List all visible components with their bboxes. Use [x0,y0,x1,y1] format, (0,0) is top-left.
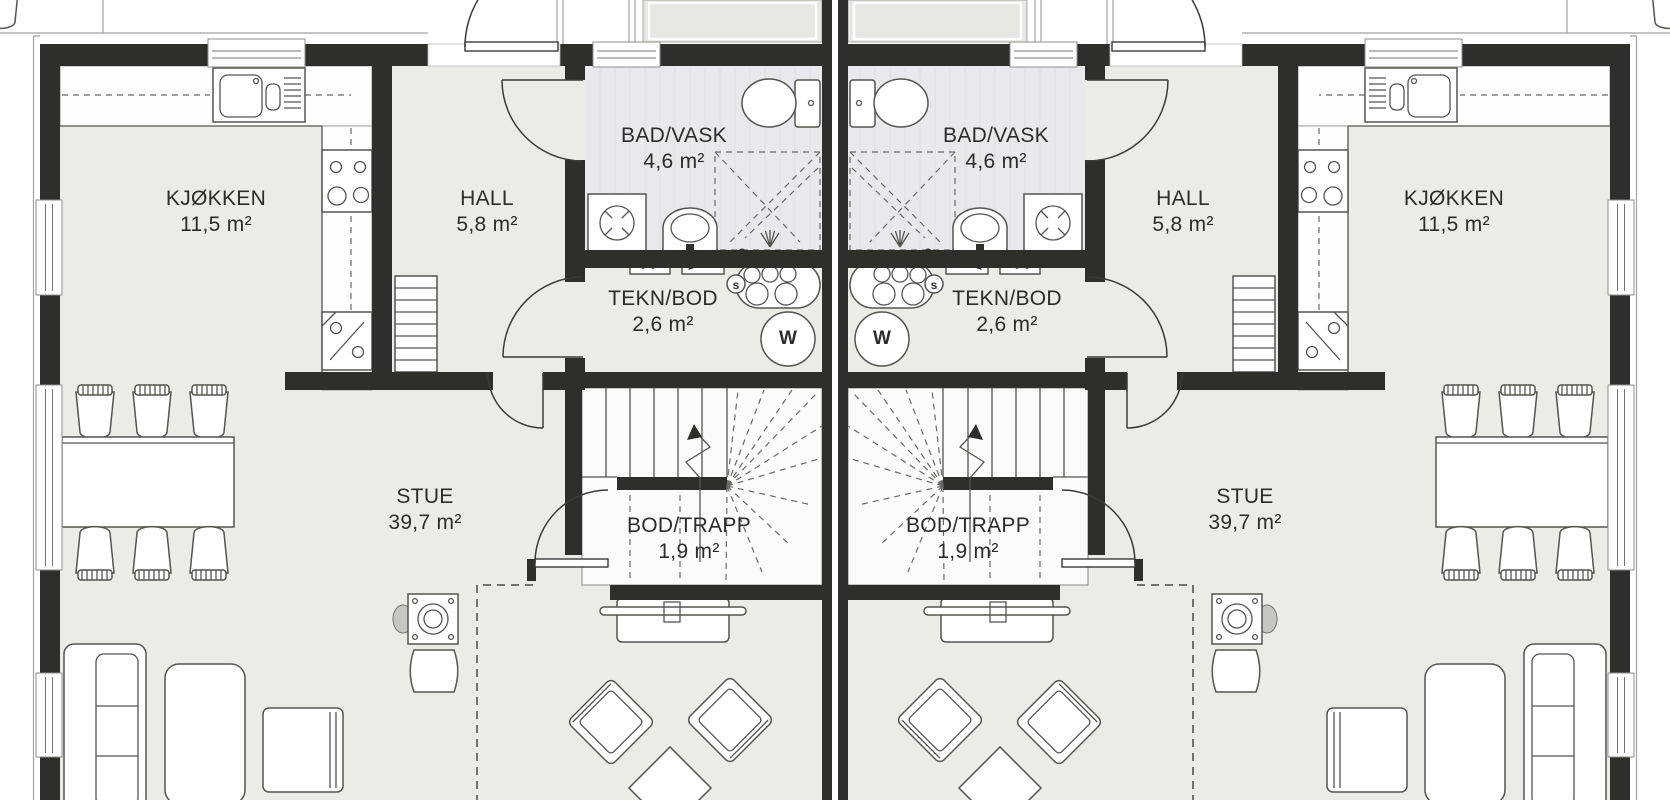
water-heater-label-right: W [873,328,891,350]
room-area: 11,5 m² [166,212,266,238]
window [208,39,305,67]
room-area: 5,8 m² [456,212,517,238]
window [593,42,660,67]
room-name: KJØKKEN [166,186,266,212]
room-area: 2,6 m² [608,312,718,338]
room-name: TEKN/BOD [608,286,718,312]
room-name: BAD/VASK [621,123,727,149]
sofa [64,644,146,800]
room-area: 39,7 m² [1208,510,1281,536]
toilet-icon [742,79,820,127]
entrance-door [465,0,558,51]
unit-right-mirrored [835,0,1670,800]
armchair [263,708,343,792]
room-label-kjokken-right: KJØKKEN 11,5 m² [1404,186,1504,238]
window [36,200,62,295]
cooktop-icon [322,150,372,212]
room-area: 5,8 m² [1152,212,1213,238]
dining-chair [76,385,114,438]
room-label-tekn-left: TEKN/BOD 2,6 m² [608,286,718,338]
room-area: 39,7 m² [388,510,461,536]
room-area: 1,9 m² [906,539,1030,565]
window [36,385,62,570]
dining-chair [133,527,171,580]
tv-bench [600,598,746,642]
room-label-bad-left: BAD/VASK 4,6 m² [621,123,727,175]
room-label-stue-right: STUE 39,7 m² [1208,484,1281,536]
room-area: 4,6 m² [621,149,727,175]
washbasin-icon [663,208,717,252]
room-name: HALL [1152,186,1213,212]
kitchen-sink-icon [213,68,305,122]
party-wall [822,0,832,800]
room-label-hall-right: HALL 5,8 m² [1152,186,1213,238]
room-name: KJØKKEN [1404,186,1504,212]
dining-table [62,437,234,527]
dishwasher-icon [322,312,372,370]
floor-plan-drawing [0,0,1670,800]
shunt-label-left: s [733,278,740,292]
wardrobe-icon [395,276,437,372]
unit-left [0,0,835,800]
room-label-stue-left: STUE 39,7 m² [388,484,461,536]
room-name: HALL [456,186,517,212]
room-area: 2,6 m² [952,312,1062,338]
room-label-hall-left: HALL 5,8 m² [456,186,517,238]
floor-plan: KJØKKEN 11,5 m² HALL 5,8 m² BAD/VASK 4,6… [0,0,1670,800]
dining-chair [190,527,228,580]
room-name: BAD/VASK [943,123,1049,149]
room-label-bod-right: BOD/TRAPP 1,9 m² [906,513,1030,565]
dining-chair [190,385,228,438]
room-name: BOD/TRAPP [906,513,1030,539]
room-area: 4,6 m² [943,149,1049,175]
room-name: BOD/TRAPP [627,513,751,539]
room-label-kjokken-left: KJØKKEN 11,5 m² [166,186,266,238]
room-area: 11,5 m² [1404,212,1504,238]
room-label-bod-left: BOD/TRAPP 1,9 m² [627,513,751,565]
dining-chair [0,0,19,28]
water-heater-label-left: W [779,328,797,350]
room-label-tekn-right: TEKN/BOD 2,6 m² [952,286,1062,338]
room-name: STUE [388,484,461,510]
chaise [165,664,245,800]
room-label-bad-right: BAD/VASK 4,6 m² [943,123,1049,175]
window [36,673,62,757]
dining-chair [76,527,114,580]
room-name: STUE [1208,484,1281,510]
washing-machine-icon [588,194,646,252]
room-name: TEKN/BOD [952,286,1062,312]
dining-chair [133,385,171,438]
room-area: 1,9 m² [627,539,751,565]
shunt-label-right: s [931,278,938,292]
firewood-basket-icon [410,650,458,692]
